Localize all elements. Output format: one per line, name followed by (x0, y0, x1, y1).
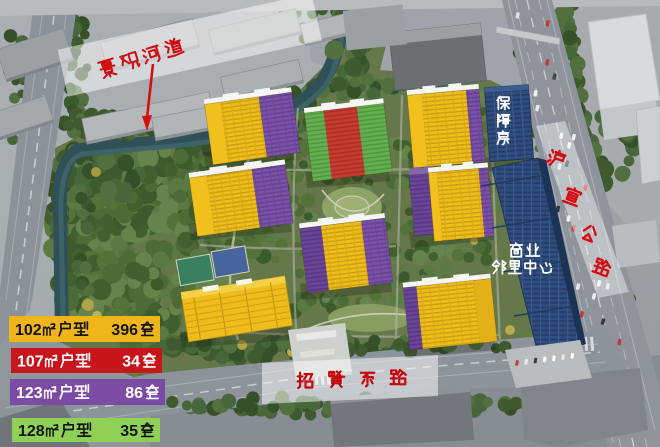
svg-text:86: 86 (125, 385, 143, 402)
svg-text:102: 102 (15, 322, 42, 339)
svg-text:123: 123 (16, 385, 43, 402)
svg-text:107: 107 (17, 353, 44, 370)
svg-text:35: 35 (120, 423, 138, 440)
svg-text:128: 128 (18, 423, 45, 440)
svg-text:396: 396 (111, 322, 138, 339)
svg-text:34: 34 (122, 353, 140, 370)
